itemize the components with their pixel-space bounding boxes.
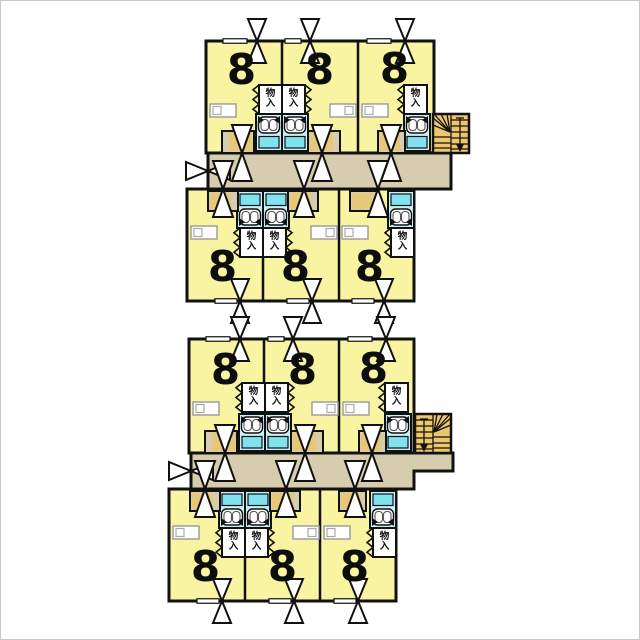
- window: [268, 337, 284, 342]
- window: [334, 599, 356, 604]
- room-size-label: 8: [211, 349, 239, 391]
- bathroom: [404, 114, 430, 151]
- kitchen-counter: [342, 226, 368, 239]
- bathroom: [245, 491, 271, 528]
- window: [206, 337, 230, 342]
- window: [352, 299, 374, 304]
- window: [215, 299, 237, 304]
- room-size-label: 8: [227, 49, 255, 91]
- kitchen-counter: [293, 526, 319, 539]
- kitchen-counter: [173, 526, 199, 539]
- kitchen-counter: [311, 226, 337, 239]
- kitchen-counter: [343, 402, 369, 415]
- closet-label: 物入: [391, 387, 402, 407]
- closet-label: 物入: [397, 232, 408, 252]
- staircase-icon: [415, 414, 451, 453]
- window: [285, 39, 301, 44]
- entry-genkan-step: [352, 193, 372, 209]
- staircase-icon: [433, 114, 469, 153]
- window: [367, 39, 391, 44]
- kitchen-counter: [330, 104, 356, 117]
- closet-label: 物入: [271, 387, 282, 407]
- floorplan-canvas: 8 8 8 物入 物入 物入 8 8 8 物入 物入 物入 8 8 8 物入 物…: [0, 0, 640, 640]
- window: [348, 337, 372, 342]
- room-size-label: 8: [340, 546, 368, 588]
- room-size-label: 8: [288, 349, 316, 391]
- kitchen-counter: [324, 526, 350, 539]
- closet-label: 物入: [379, 532, 390, 552]
- room-size-label: 8: [191, 546, 219, 588]
- bathroom: [370, 491, 396, 528]
- kitchen-counter: [312, 402, 338, 415]
- closet-label: 物入: [410, 89, 421, 109]
- closet-label: 物入: [248, 387, 259, 407]
- bathroom: [256, 114, 282, 151]
- closet-label: 物入: [288, 89, 299, 109]
- bathroom: [263, 191, 289, 228]
- closet-label: 物入: [246, 232, 257, 252]
- bathroom: [388, 191, 414, 228]
- bathroom: [265, 414, 291, 451]
- closet-label: 物入: [228, 532, 239, 552]
- room-size-label: 8: [305, 49, 333, 91]
- room-size-label: 8: [359, 348, 387, 390]
- closet-label: 物入: [269, 232, 280, 252]
- kitchen-counter: [362, 104, 388, 117]
- kitchen-counter: [191, 226, 217, 239]
- window: [287, 299, 309, 304]
- bathroom: [237, 191, 263, 228]
- bathroom: [385, 414, 411, 451]
- closet-label: 物入: [265, 89, 276, 109]
- closet-label: 物入: [251, 532, 262, 552]
- room-size-label: 8: [281, 246, 309, 288]
- window: [197, 599, 219, 604]
- floorplan-drawing: [1, 1, 640, 640]
- room-size-label: 8: [208, 246, 236, 288]
- kitchen-counter: [193, 402, 219, 415]
- room-size-label: 8: [380, 48, 408, 90]
- bathroom: [219, 491, 245, 528]
- room-size-label: 8: [268, 546, 296, 588]
- window: [269, 599, 291, 604]
- kitchen-counter: [210, 104, 236, 117]
- room-size-label: 8: [355, 246, 383, 288]
- bathroom: [239, 414, 265, 451]
- window: [223, 39, 247, 44]
- bathroom: [282, 114, 308, 151]
